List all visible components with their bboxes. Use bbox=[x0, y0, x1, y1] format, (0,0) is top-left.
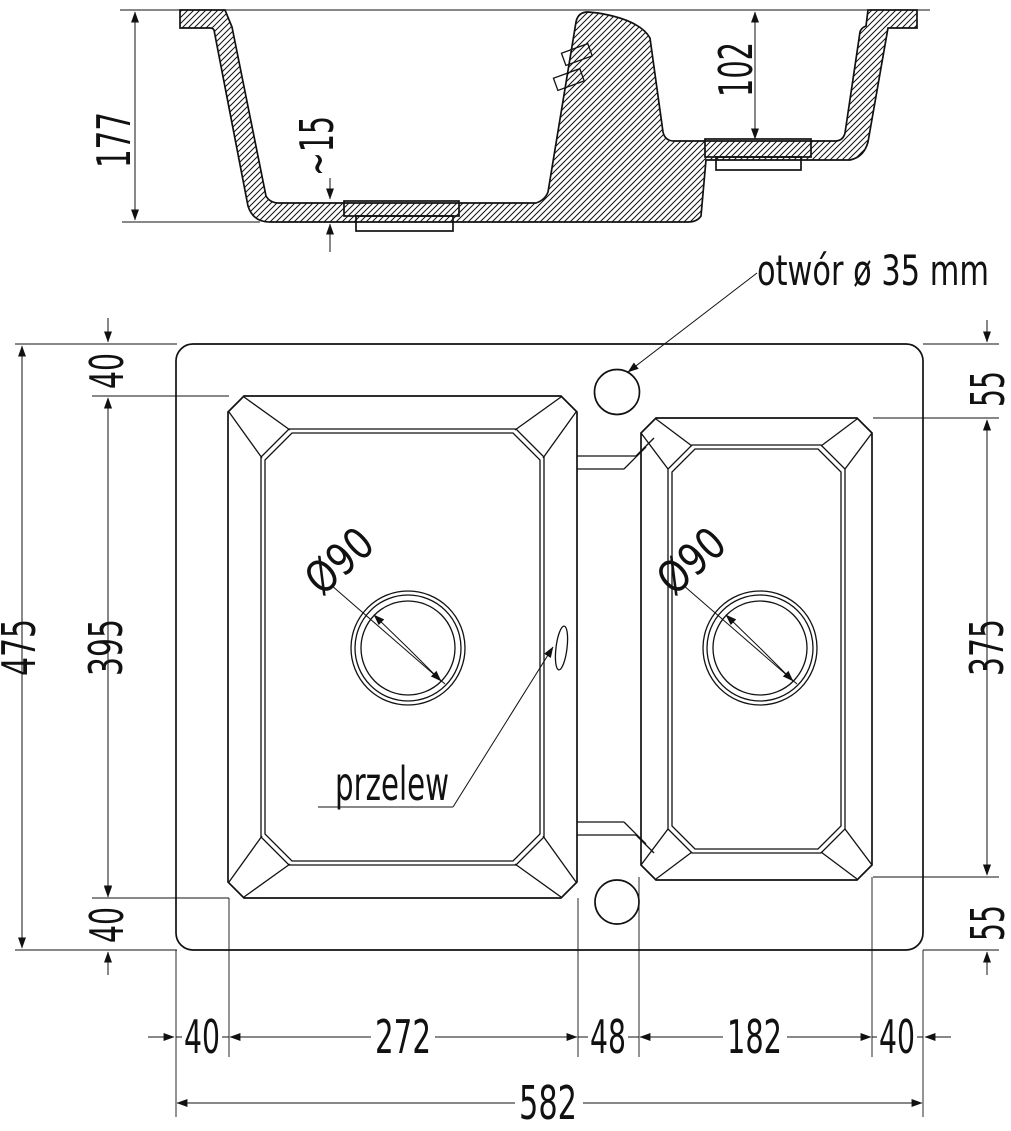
overflow-leader bbox=[453, 647, 553, 807]
dim-total-height: 475 bbox=[0, 619, 46, 676]
overall-width-dimension: 582 bbox=[177, 1076, 922, 1130]
bowl-channel bbox=[577, 438, 654, 853]
dim-right-bottom-offset: 55 bbox=[961, 905, 1011, 941]
cross-section-view: 177 ~15 102 bbox=[87, 10, 930, 252]
drawing-canvas: 177 ~15 102 bbox=[0, 0, 1011, 1131]
dim-left-bowl-length: 395 bbox=[79, 619, 133, 676]
dim-total-width: 582 bbox=[519, 1076, 577, 1130]
left-drain-diameter-label: Ø90 bbox=[295, 518, 384, 605]
section-material bbox=[180, 10, 917, 222]
bottom-dimensions: 40 272 48 182 40 bbox=[148, 1010, 951, 1064]
dim-left-bottom-offset: 40 bbox=[80, 907, 134, 943]
second-tap-hole bbox=[595, 880, 639, 924]
overflow-hole bbox=[553, 625, 569, 670]
dim-right-top-offset: 55 bbox=[961, 371, 1011, 407]
dim-right-bowl-width: 182 bbox=[727, 1010, 782, 1064]
plan-view: otwór ø 35 mm przelew Ø90 Ø90 475 40 395 bbox=[0, 246, 1011, 1130]
dim-bottom-left-margin: 40 bbox=[184, 1010, 220, 1064]
sink-technical-drawing: 177 ~15 102 bbox=[0, 0, 1011, 1131]
dim-base-thickness: ~15 bbox=[290, 116, 344, 176]
dim-right-bowl-depth: 102 bbox=[709, 42, 763, 97]
faucet-hole-leader bbox=[628, 273, 757, 372]
faucet-hole-label: otwór ø 35 mm bbox=[757, 246, 989, 295]
overflow-label: przelew bbox=[335, 757, 449, 811]
right-bowl bbox=[577, 418, 872, 880]
dim-total-depth: 177 bbox=[87, 112, 141, 168]
dim-bottom-right-margin: 40 bbox=[879, 1010, 915, 1064]
right-drain-diameter-label: Ø90 bbox=[647, 518, 736, 605]
faucet-hole bbox=[595, 370, 640, 415]
dim-right-bowl-length: 375 bbox=[960, 619, 1011, 676]
left-drain-annotation: Ø90 bbox=[295, 518, 445, 684]
dim-left-bowl-width: 272 bbox=[375, 1010, 431, 1064]
sink-outline bbox=[176, 344, 923, 950]
dim-divider-width: 48 bbox=[590, 1010, 626, 1064]
left-dimensions: 475 40 395 40 bbox=[0, 318, 134, 975]
right-drain-annotation: Ø90 bbox=[647, 518, 797, 684]
dim-left-top-offset: 40 bbox=[80, 353, 134, 389]
